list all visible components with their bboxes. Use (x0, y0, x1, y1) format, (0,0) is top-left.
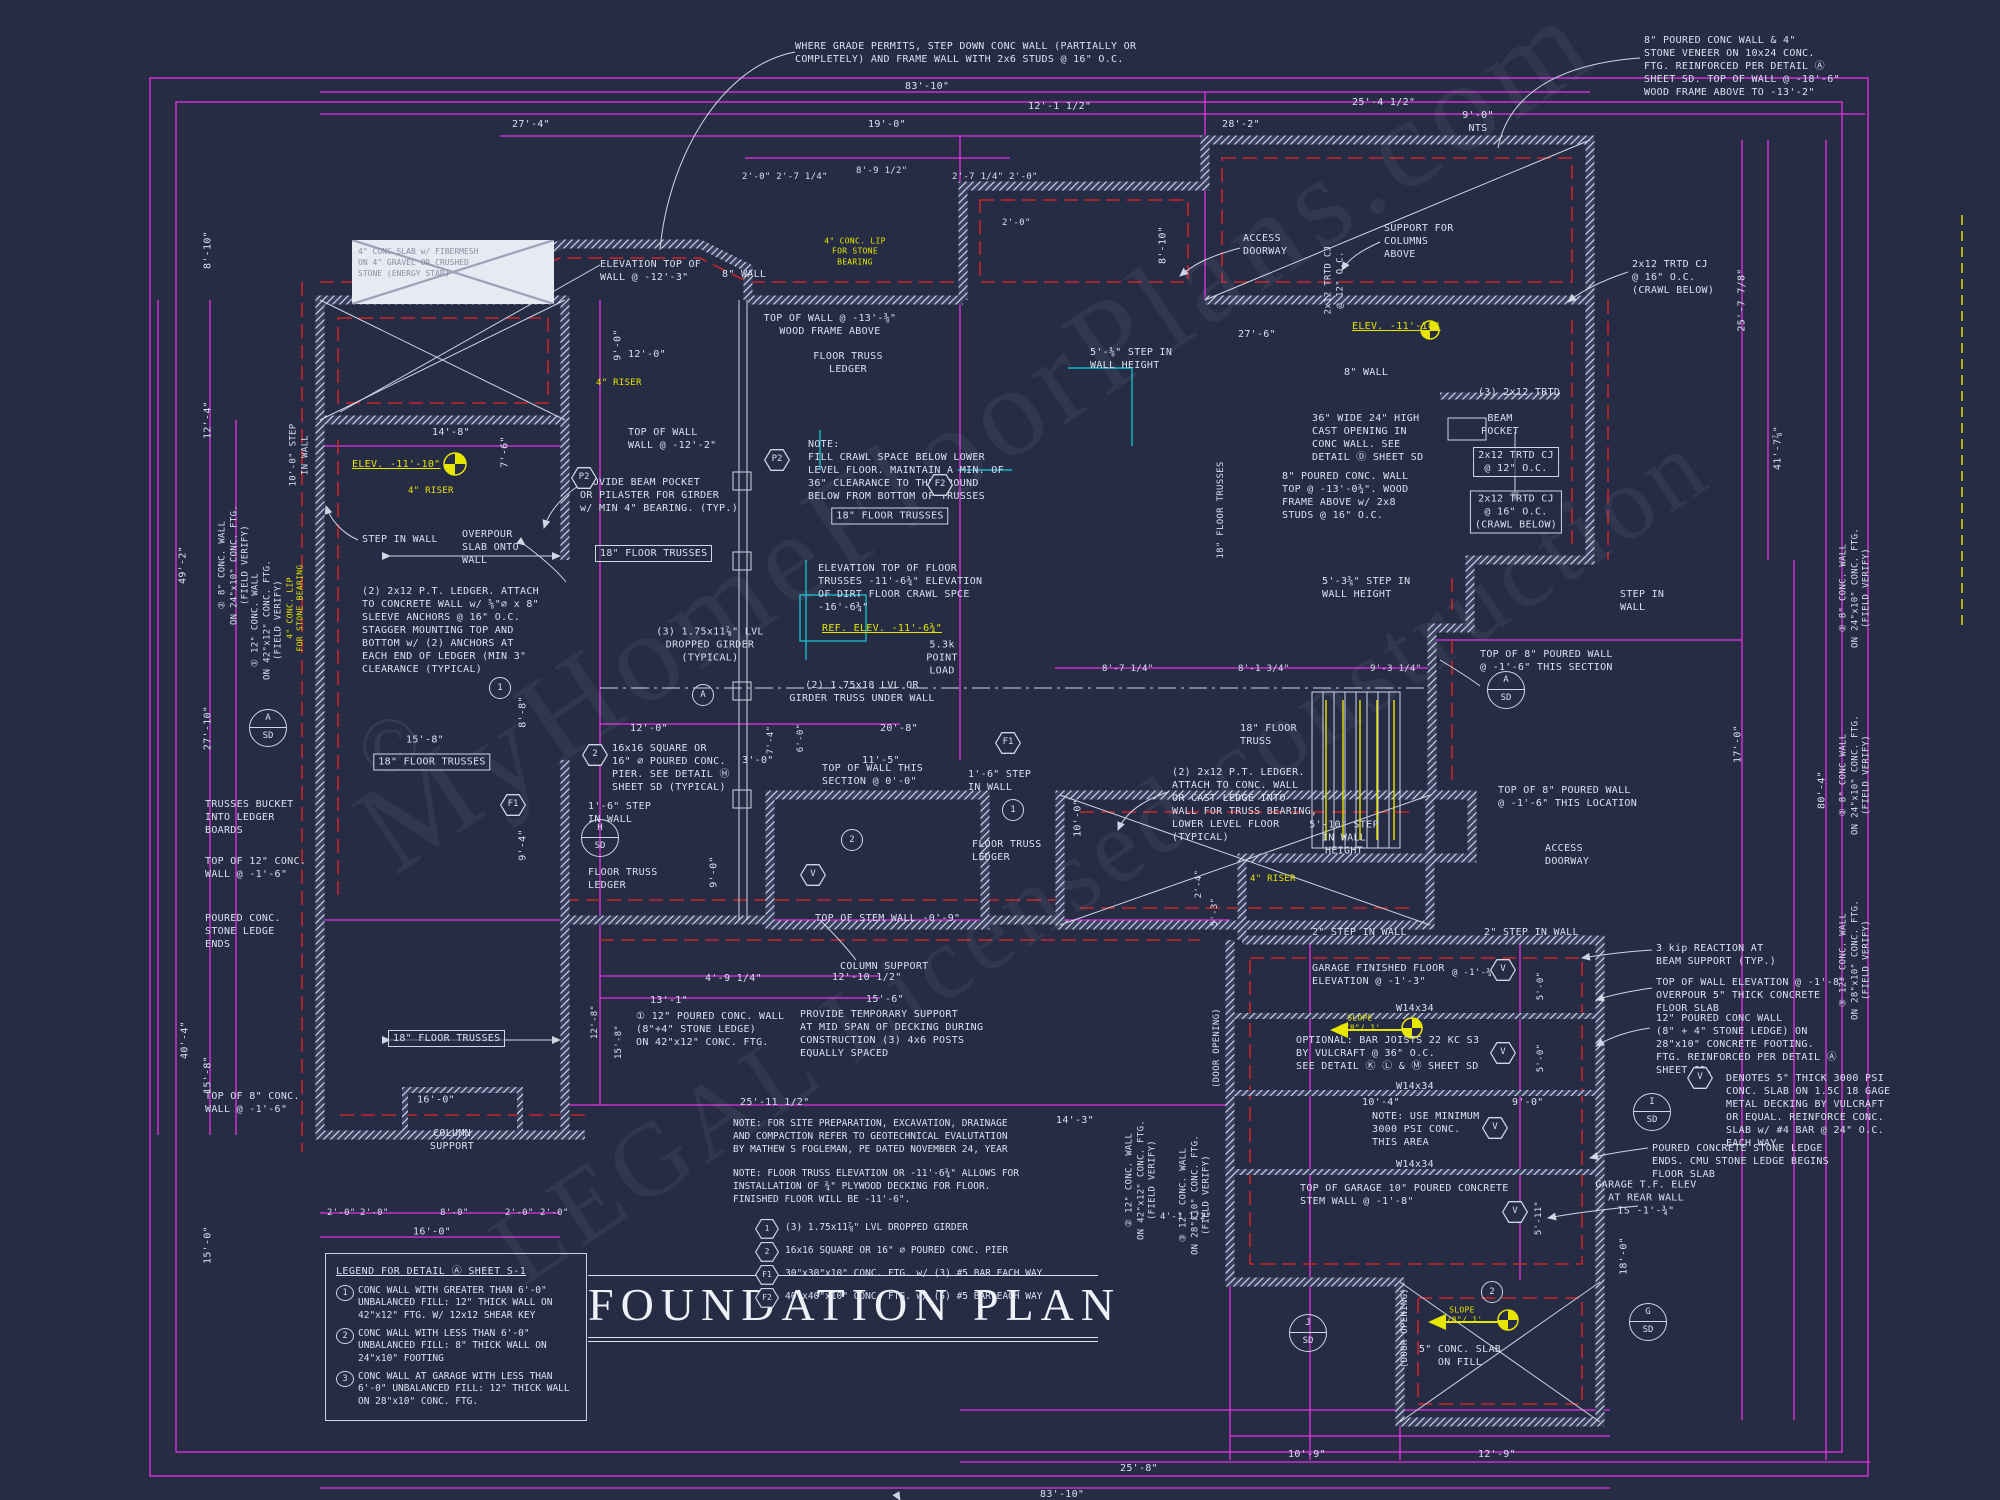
detail-bubble-g: GSD (1629, 1303, 1667, 1341)
hex-key-f1: F1 (500, 794, 526, 816)
legend-box: LEGEND FOR DETAIL Ⓐ SHEET S-1 1CONC WALL… (325, 1253, 587, 1421)
legend-item-text: CONC WALL WITH GREATER THAN 6'-0" UNBALA… (358, 1285, 578, 1322)
redacted-line: 4" CONC SLAB w/ FIBERMESH (358, 246, 548, 257)
redacted-line: ON 4" GRAVEL OR CRUSHED (358, 257, 548, 268)
detail-bubble-h: HSD (581, 819, 619, 857)
legend-item-text: CONC WALL WITH LESS THAN 6'-0" UNBALANCE… (358, 1328, 578, 1365)
circle-key-1: 1 (489, 677, 511, 699)
key-item-text: 40"x40"x10" CONC. FTG. w/ (5) #5 BAR EAC… (785, 1291, 1042, 1304)
hex-key-f1: F1 (995, 732, 1021, 754)
hex-key-2: 2 (582, 744, 608, 766)
key-item: F240"x40"x10" CONC. FTG. w/ (5) #5 BAR E… (755, 1288, 1081, 1308)
legend-items: 1CONC WALL WITH GREATER THAN 6'-0" UNBAL… (336, 1285, 578, 1408)
hex-key-v: V (1482, 1117, 1508, 1139)
detail-bubble-a: ASD (249, 709, 287, 747)
legend-item: 3CONC WALL AT GARAGE WITH LESS THAN 6'-0… (336, 1371, 578, 1408)
key-item-text: 30"x30"x10" CONC. FTG. w/ (3) #5 BAR EAC… (785, 1268, 1042, 1281)
key-items: 1(3) 1.75x11⅞" LVL DROPPED GIRDER216x16 … (733, 1219, 1081, 1308)
title-rule-bottom1 (588, 1337, 1098, 1338)
hex-key-p2: P2 (764, 449, 790, 471)
legend-item: 2CONC WALL WITH LESS THAN 6'-0" UNBALANC… (336, 1328, 578, 1365)
key-item-text: (3) 1.75x11⅞" LVL DROPPED GIRDER (785, 1222, 968, 1235)
key-item: 1(3) 1.75x11⅞" LVL DROPPED GIRDER (755, 1219, 1081, 1239)
hex-key-v: V (800, 864, 826, 886)
legend-item-number: 1 (336, 1285, 354, 1301)
detail-bubble-a: ASD (1487, 671, 1525, 709)
notes-block: NOTE: FOR SITE PREPARATION, EXCAVATION, … (733, 1118, 1081, 1311)
note-truss-elevation: NOTE: FLOOR TRUSS ELEVATION OR -11'-6¾" … (733, 1168, 1081, 1206)
detail-bubble-i: ISD (1633, 1093, 1671, 1131)
key-item-marker: 1 (755, 1219, 779, 1239)
redacted-line: STONE (ENERGY STAR) (358, 268, 548, 279)
legend-item-number: 2 (336, 1328, 354, 1344)
redacted-note-box: 4" CONC SLAB w/ FIBERMESH ON 4" GRAVEL O… (352, 240, 554, 304)
detail-bubble-j: JSD (1289, 1314, 1327, 1352)
hex-key-v: V (1490, 959, 1516, 981)
legend-title: LEGEND FOR DETAIL Ⓐ SHEET S-1 (336, 1262, 578, 1277)
key-item: 216x16 SQUARE OR 16" ⌀ POURED CONC. PIER (755, 1242, 1081, 1262)
circle-key-a: A (692, 684, 714, 706)
blueprint-canvas: MyHomeFloorPlans.com LEGAL Licensed cons… (0, 0, 2000, 1500)
hex-key-v: V (1687, 1067, 1713, 1089)
key-item-marker: 2 (755, 1242, 779, 1262)
hex-key-v: V (1490, 1042, 1516, 1064)
key-item-text: 16x16 SQUARE OR 16" ⌀ POURED CONC. PIER (785, 1245, 1008, 1258)
circle-key-2: 2 (841, 829, 863, 851)
legend-item: 1CONC WALL WITH GREATER THAN 6'-0" UNBAL… (336, 1285, 578, 1322)
key-item-marker: F2 (755, 1288, 779, 1308)
hex-key-f2: F2 (927, 474, 953, 496)
circle-key-2: 2 (1481, 1281, 1503, 1303)
key-item: F130"x30"x10" CONC. FTG. w/ (3) #5 BAR E… (755, 1265, 1081, 1285)
circle-key-1: 1 (1002, 799, 1024, 821)
key-item-marker: F1 (755, 1265, 779, 1285)
legend-item-text: CONC WALL AT GARAGE WITH LESS THAN 6'-0"… (358, 1371, 578, 1408)
hex-key-v: V (1502, 1201, 1528, 1223)
hex-key-p2: P2 (571, 467, 597, 489)
note-geotech: NOTE: FOR SITE PREPARATION, EXCAVATION, … (733, 1118, 1081, 1156)
title-rule-bottom2 (588, 1341, 1098, 1342)
legend-item-number: 3 (336, 1371, 354, 1387)
